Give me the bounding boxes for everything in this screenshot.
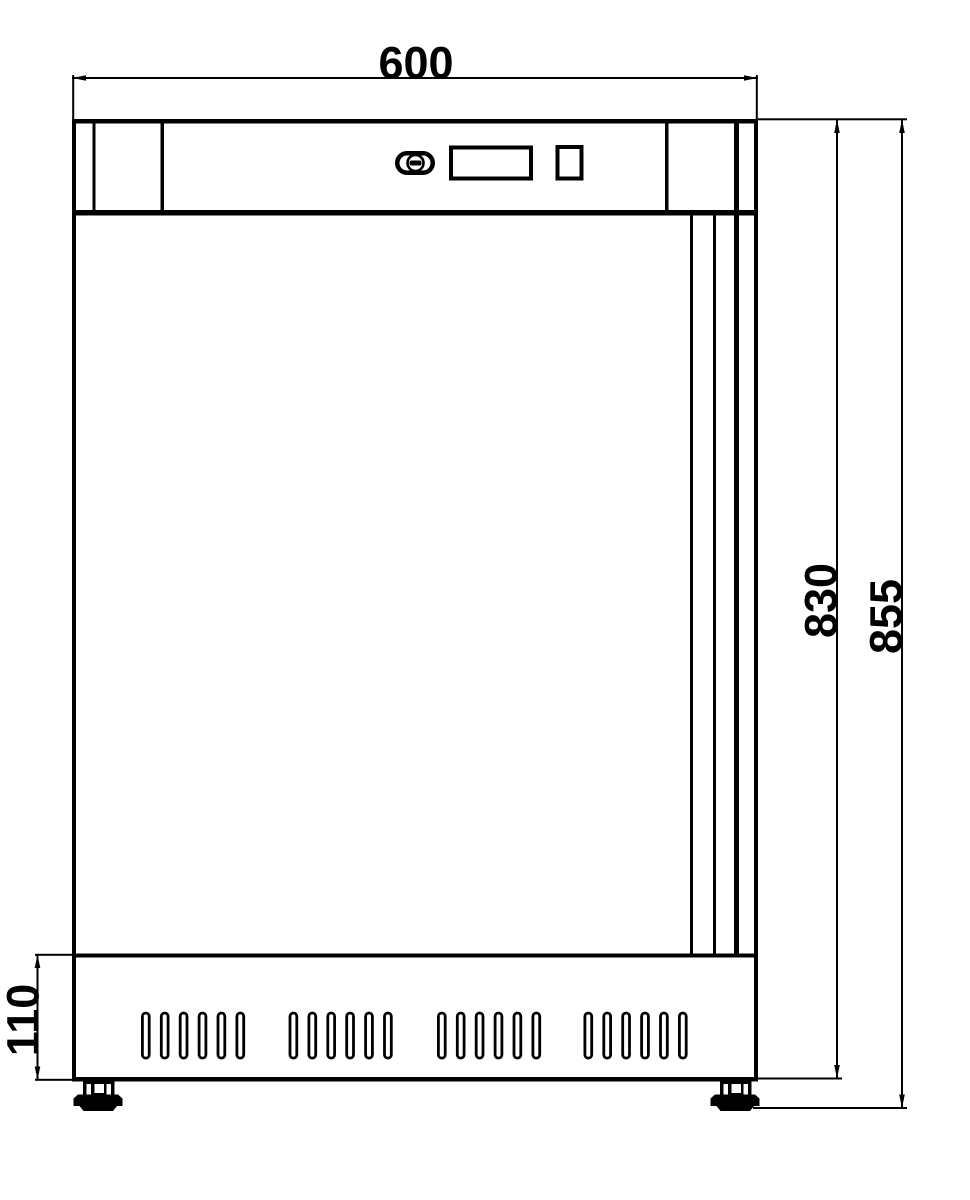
- svg-text:110: 110: [0, 984, 49, 1057]
- svg-text:855: 855: [861, 579, 912, 654]
- svg-text:830: 830: [796, 563, 847, 638]
- svg-text:600: 600: [378, 38, 453, 89]
